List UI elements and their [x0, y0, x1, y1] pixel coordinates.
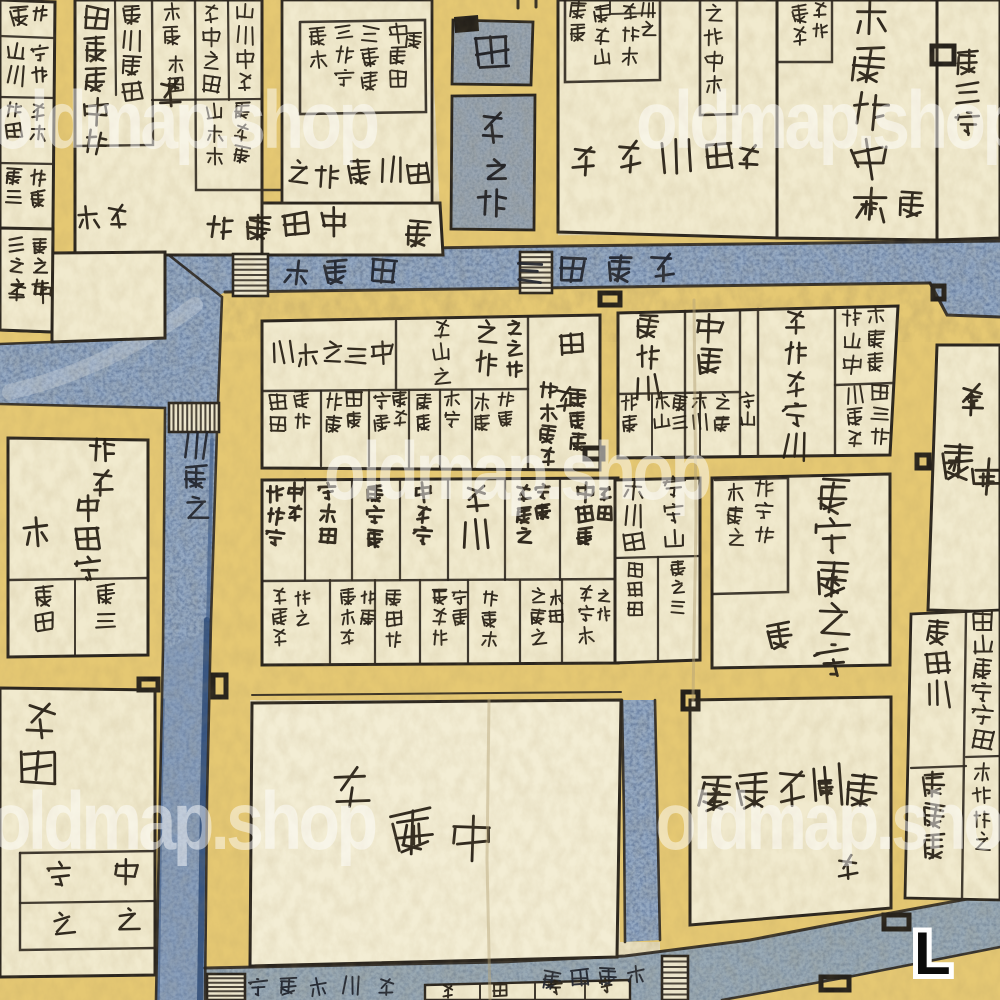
- svg-text:oldmap.shop: oldmap.shop: [324, 425, 709, 516]
- svg-text:oldmap.shop: oldmap.shop: [0, 74, 377, 165]
- svg-text:oldmap.shop: oldmap.shop: [0, 775, 375, 866]
- svg-text:L: L: [914, 920, 951, 987]
- svg-text:oldmap.shop: oldmap.shop: [655, 775, 1000, 866]
- svg-text:oldmap.shop: oldmap.shop: [636, 74, 1000, 165]
